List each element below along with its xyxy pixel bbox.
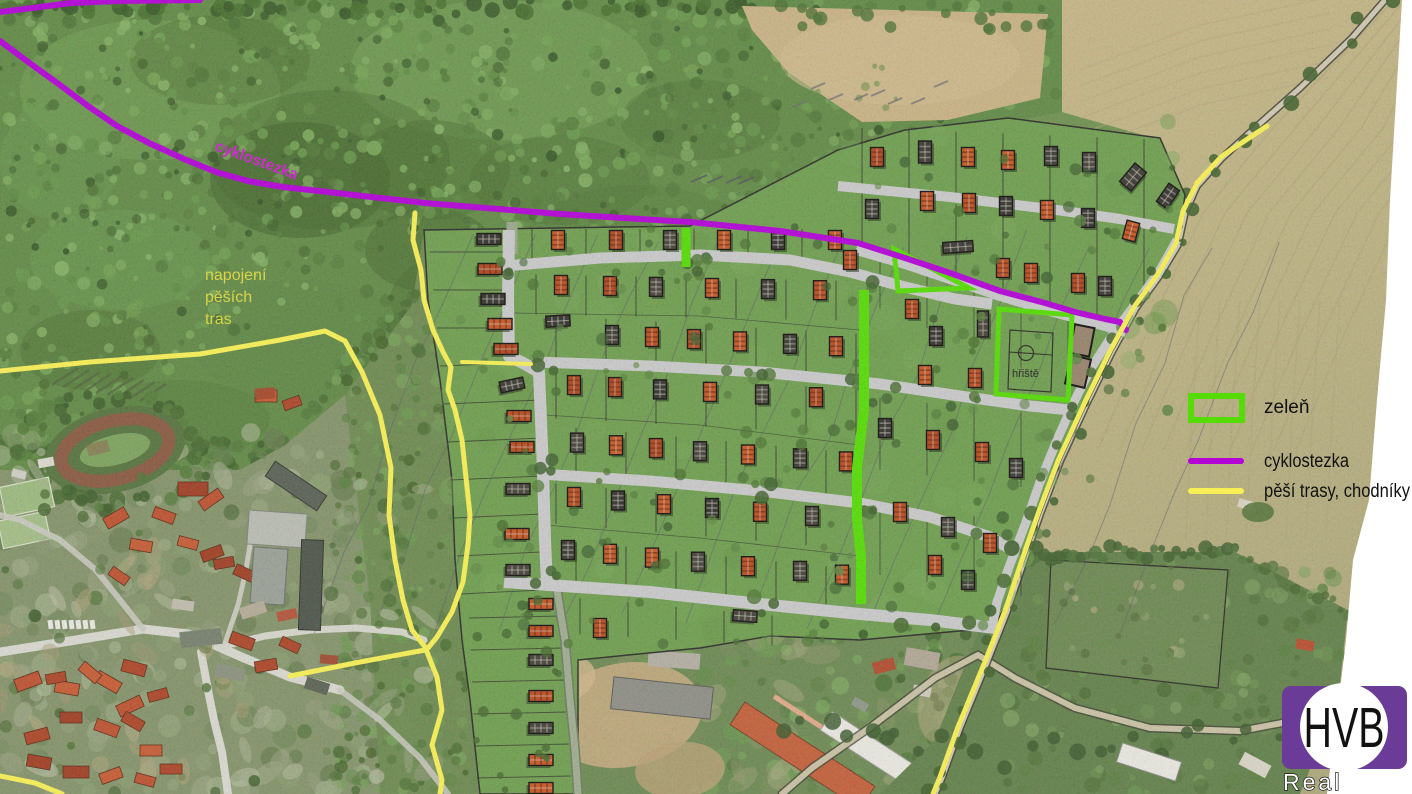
svg-text:zeleň: zeleň (1264, 397, 1309, 418)
svg-text:Real: Real (1283, 769, 1342, 794)
svg-text:pěší trasy, chodníky: pěší trasy, chodníky (1264, 481, 1410, 502)
svg-text:cyklostezka: cyklostezka (1264, 451, 1349, 472)
svg-text:HVB: HVB (1304, 696, 1385, 760)
